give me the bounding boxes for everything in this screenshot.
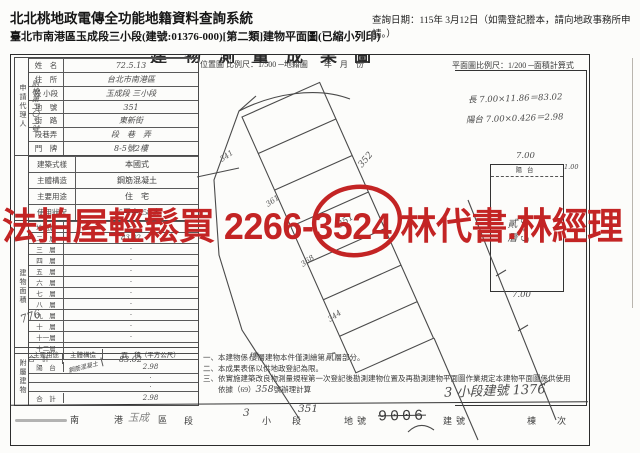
floor-label: 十一層: [29, 332, 64, 342]
attached-col-use: 主要用途: [29, 349, 64, 359]
form-row-value: 351: [64, 103, 198, 112]
building-number-struck: 9006: [378, 408, 426, 426]
form-rows-top: 姓 名 72.5.13 住 所 台北市南港區 段 小段 玉成段 三小段: [29, 58, 198, 155]
form-row: 主體構造 鋼筋混凝土: [29, 172, 198, 188]
floor-label: 四 層: [29, 255, 64, 265]
plan-dim-top: 7.00: [516, 151, 535, 161]
floor-row: 四 層 ·: [29, 254, 198, 265]
form-row: 姓 名 72.5.13: [29, 58, 198, 72]
form-row-value: 玉成段 三小段: [64, 88, 198, 99]
handwritten-case-number: 附檢第二〇二號: [30, 80, 41, 133]
floor-row: 九 層 ·: [29, 309, 198, 320]
lot-label: 地號: [344, 414, 370, 427]
floor-label: 十 層: [29, 321, 64, 331]
scan-page-edge: [632, 58, 633, 308]
plan-dim-bottom: 7.00: [512, 290, 531, 300]
floor-label: 七 層: [29, 288, 64, 298]
attached-area-value: 2.98: [103, 363, 198, 371]
attached-side-label: 附屬建物: [15, 348, 29, 405]
applicant-section: 申請代理人 姓 名 72.5.13 住 所 台北市南港區 段 小段: [15, 58, 198, 156]
floor-area-value: ·: [64, 278, 198, 286]
balcony-label: 陽台: [491, 165, 563, 177]
attached-use: 陽 台: [29, 362, 64, 372]
building-no-label: 建號: [443, 414, 469, 427]
form-row: 建築式樣 本國式: [29, 156, 198, 172]
balcony-depth-dim: 1.00: [564, 163, 578, 171]
floor-area-value: ·: [64, 267, 198, 275]
floor-area-value: ·: [64, 256, 198, 264]
district-label: 南 港 區: [70, 413, 180, 426]
handwritten-section-name: 玉成: [128, 410, 149, 425]
handwritten-lot-no: 351: [298, 403, 318, 415]
attached-data-row: 陽 台 鋼筋混凝土 2.98: [29, 359, 198, 372]
form-row-value: 段 巷 弄: [64, 129, 198, 140]
scanned-survey-document-page: 北北桃地政電傳全功能地籍資料查詢系統 查詢日期：115年 3月12日（如需登記謄…: [0, 0, 640, 453]
attached-col-material: 主體構造: [64, 349, 103, 359]
form-row-label: 門 牌: [29, 142, 64, 155]
floor-label: 六 層: [29, 277, 64, 287]
form-row-value: 台北市南港區: [64, 74, 198, 85]
system-title: 北北桃地政電傳全功能地籍資料查詢系統: [10, 7, 253, 27]
note-1-hand-2: 貳: [325, 352, 335, 363]
attached-building-section: 附屬建物 主要用途 主體構造 面 積（平方公尺） 陽 台 鋼筋混凝土 2.98 …: [15, 348, 198, 405]
floor-row: 五 層 ·: [29, 265, 198, 276]
floor-area-value: ·: [64, 311, 198, 319]
form-row-label: 姓 名: [29, 59, 64, 72]
applicant-side-label: 申請代理人: [15, 58, 29, 155]
floor-row: 十 層 ·: [29, 320, 198, 331]
floor-row: 六 層 ·: [29, 276, 198, 287]
floor-area-value: ·: [64, 322, 198, 330]
attached-dot-row: ·: [29, 382, 198, 391]
form-row: 門 牌 8-5號2樓: [29, 141, 198, 155]
form-row: 地 號 351: [29, 100, 198, 114]
document-subtitle: 臺北市南港區玉成段三小段(建號:01376-000)[第二類]建物平面圖(已縮小…: [10, 28, 380, 44]
unit-label: 棟 次: [527, 414, 572, 427]
dot: ·: [103, 374, 198, 382]
form-row: 段巷弄 段 巷 弄: [29, 127, 198, 141]
attached-dot-row: ·: [29, 373, 198, 382]
attached-header-row: 主要用途 主體構造 面 積（平方公尺）: [29, 348, 198, 359]
form-row-label: 主體構造: [29, 173, 76, 188]
floor-area-value: ·: [64, 333, 198, 341]
floor-area-value: ·: [64, 300, 198, 308]
floor-row: 八 層 ·: [29, 298, 198, 309]
attached-total-value: 2.98: [103, 394, 198, 402]
form-row: 街 路 東新街: [29, 113, 198, 127]
form-row-label: 建築式樣: [29, 157, 76, 172]
floor-row: 七 層 ·: [29, 287, 198, 298]
form-row-value: 鋼筋混凝土: [76, 175, 198, 186]
floor-row: 十一層 ·: [29, 331, 198, 342]
subsection-label: 小 段: [262, 414, 307, 427]
form-row: 段 小段 玉成段 三小段: [29, 86, 198, 100]
form-row-value: 8-5號2樓: [64, 143, 198, 154]
section-label: 段: [184, 414, 206, 427]
form-row-value: 東新街: [64, 115, 198, 126]
watermark-text: 法拍屋輕鬆買 2266-3524 林代書.林經理: [2, 196, 621, 250]
query-date: 查詢日期：115年 3月12日（如需登記謄本，請向地政事務所申請。）: [372, 12, 640, 40]
location-scale-label: 位置圖 比例尺：1/500 ─地籍圖 年 月 份: [200, 59, 364, 70]
form-row-value: 72.5.13: [64, 61, 198, 70]
handwritten-subsection-no: 3: [243, 407, 250, 419]
floor-label: 五 層: [29, 266, 64, 276]
note-4-hand: 358: [256, 384, 274, 395]
attached-total-label: 合 計: [29, 393, 64, 403]
scan-smudge: [15, 419, 67, 422]
floor-area-value: ·: [64, 289, 198, 297]
form-row: 住 所 台北市南港區: [29, 72, 198, 86]
attached-col-area: 面 積（平方公尺）: [103, 349, 198, 359]
dot: ·: [103, 383, 198, 391]
note-1-hand-1: 樓: [248, 352, 258, 363]
form-row-value: 本國式: [76, 159, 198, 170]
